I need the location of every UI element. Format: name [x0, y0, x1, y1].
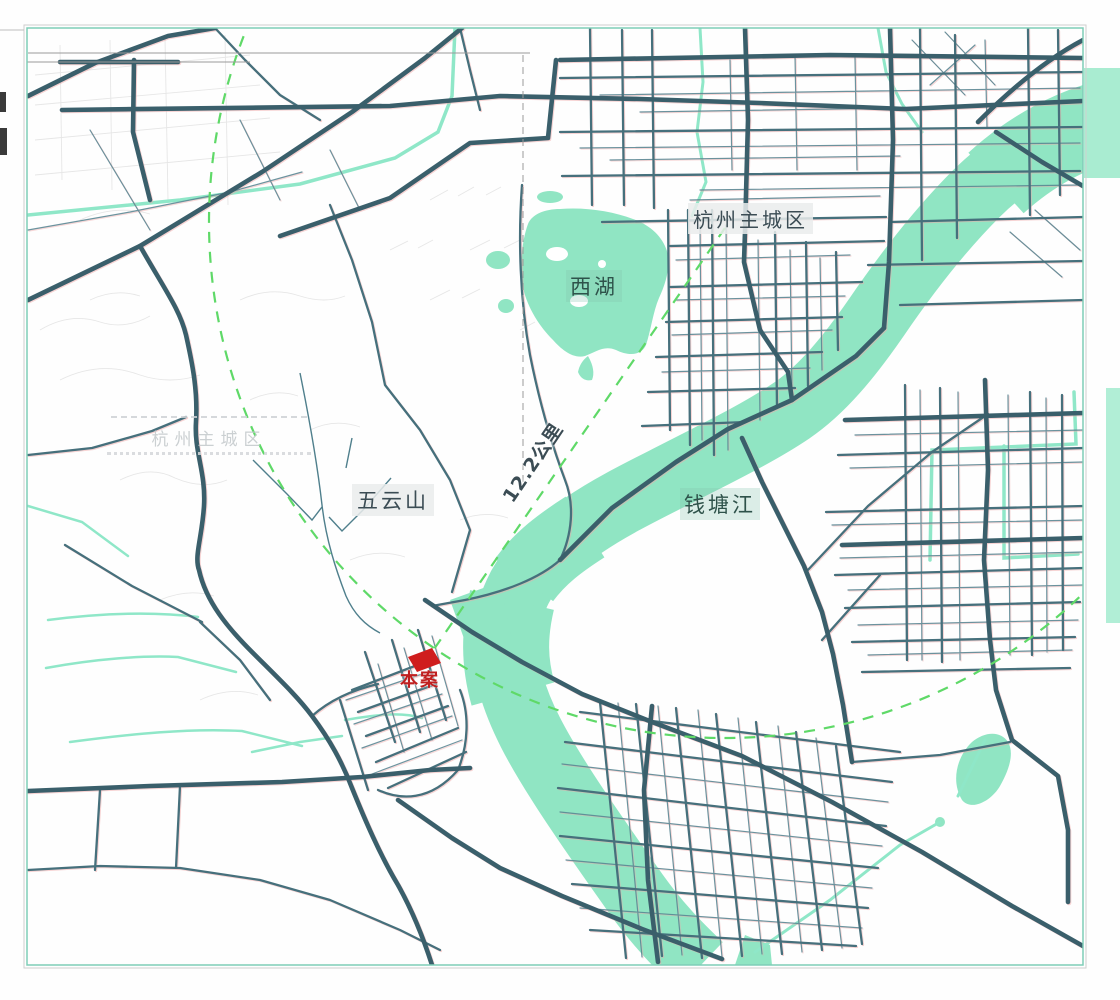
- label-wuyun-mountain: 五云山: [352, 484, 434, 516]
- ghost-strike-bottom: [107, 452, 311, 458]
- radius-circle-group: [209, 0, 1120, 738]
- label-west-lake: 西湖: [566, 270, 622, 302]
- water-bleed: [1084, 68, 1120, 623]
- map-drawing: [0, 0, 1120, 1000]
- label-qiantang-river: 钱塘江: [680, 488, 760, 520]
- map-canvas: 杭州主城区 西湖 五云山 钱塘江 12.2公里 本案 杭州主城区: [0, 0, 1120, 1000]
- ghost-strike-top: [111, 416, 307, 422]
- label-site: 本案: [400, 666, 440, 692]
- radius-circle: [209, 0, 1120, 738]
- label-ghost-city: 杭州主城区: [103, 413, 315, 460]
- edge-marks: [0, 30, 24, 155]
- label-city: 杭州主城区: [688, 203, 813, 234]
- ghost-text: 杭州主城区: [103, 425, 315, 450]
